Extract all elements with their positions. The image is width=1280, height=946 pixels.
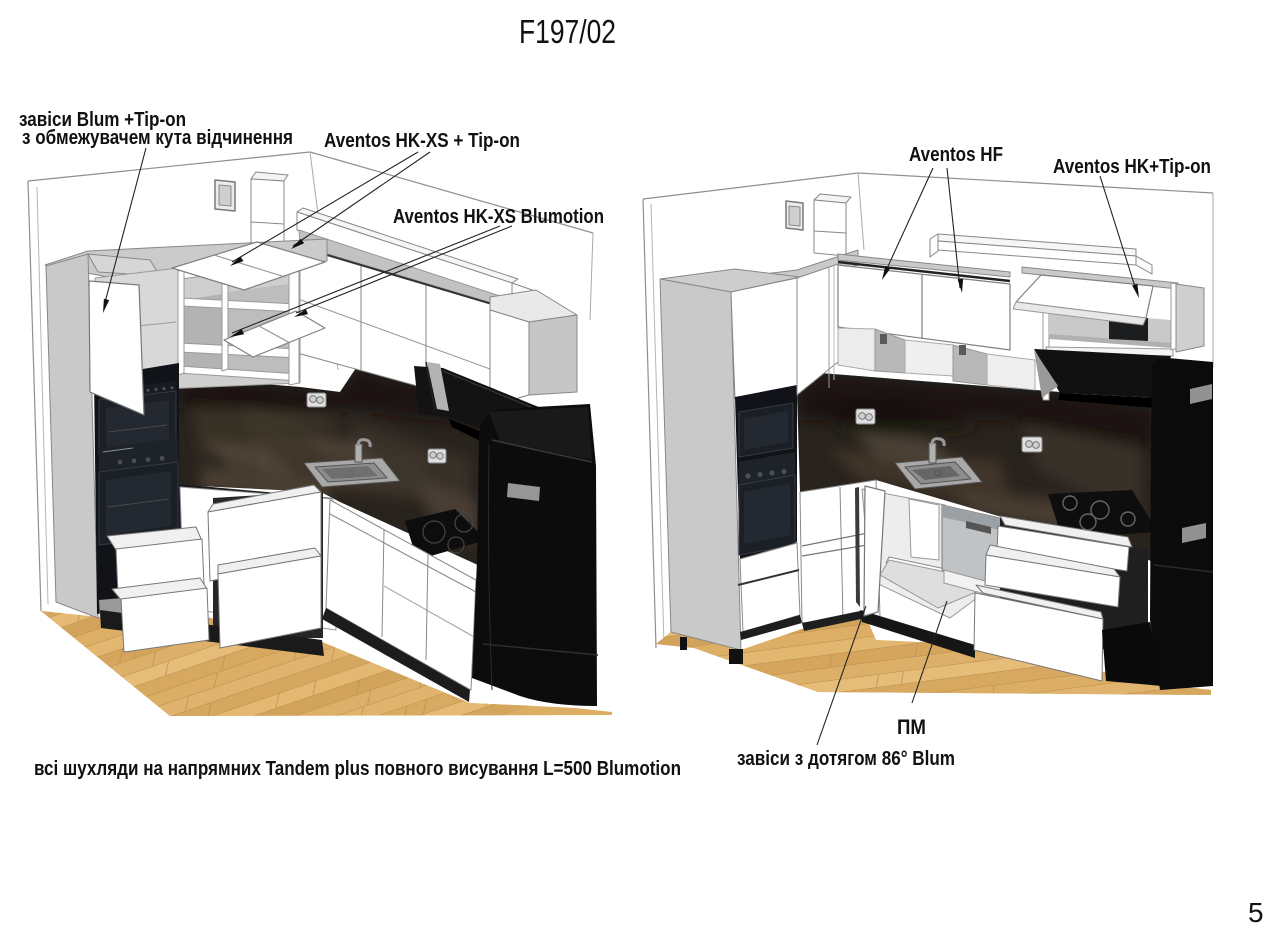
svg-text:завіси з дотягом 86° Blum: завіси з дотягом 86° Blum [737,748,955,770]
svg-text:F197/02: F197/02 [519,13,616,50]
svg-text:Aventos HK-XS + Tip-on: Aventos HK-XS + Tip-on [324,130,520,152]
svg-text:Aventos HK-XS Blumotion: Aventos HK-XS Blumotion [393,206,604,228]
svg-text:Aventos HF: Aventos HF [909,144,1003,166]
svg-text:з обмежувачем кута відчинення: з обмежувачем кута відчинення [22,127,293,149]
svg-text:5: 5 [1248,897,1264,928]
svg-text:Aventos HK+Tip-on: Aventos HK+Tip-on [1053,156,1211,178]
svg-text:ПМ: ПМ [897,716,926,739]
svg-text:всі шухляди на напрямних Tande: всі шухляди на напрямних Tandem plus пов… [34,758,681,780]
